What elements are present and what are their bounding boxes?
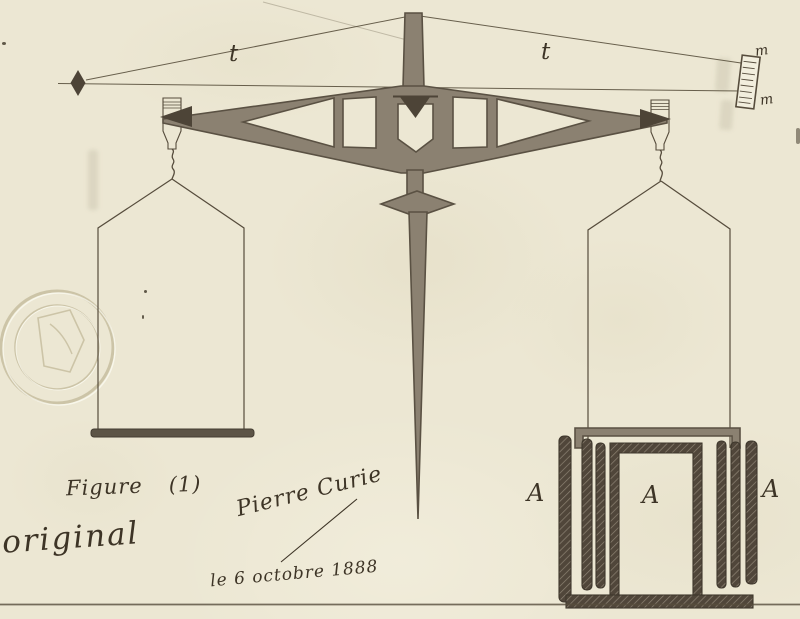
outer-wall-right	[746, 441, 757, 584]
bleedthrough-smudge	[715, 58, 731, 93]
left-hook-icon	[172, 149, 174, 179]
left-hanging-vessel	[91, 179, 254, 437]
inner-wall-right-b	[731, 442, 740, 587]
pointer-needle	[409, 212, 427, 519]
right-hook-icon	[660, 150, 662, 181]
central-post	[403, 13, 424, 87]
drawing-canvas: t t m m A A A Figure(1) original Pierre …	[0, 0, 800, 619]
bleedthrough-smudge	[88, 150, 98, 210]
ink-speck	[144, 290, 147, 293]
bleedthrough-smudge	[719, 100, 734, 131]
figure-caption: Figure(1)	[66, 472, 202, 501]
central-chamber-frame	[610, 443, 702, 597]
figure-number: (1)	[168, 472, 202, 497]
right-hanging-vessel	[588, 181, 730, 448]
label-scale-bottom: m	[759, 91, 774, 109]
ink-speck	[142, 315, 144, 319]
scan-edge-mark	[796, 128, 800, 144]
thread-right-upper	[420, 16, 741, 63]
thread-left-upper	[86, 16, 410, 80]
scanned-drawing-page: { "labels": { "thread_left": "t", "threa…	[0, 0, 800, 619]
enclosure-base	[566, 595, 753, 608]
inner-wall-right-a	[717, 441, 726, 588]
left-suspension-cup	[163, 98, 181, 179]
ink-speck	[2, 42, 6, 45]
right-suspension-cup	[651, 100, 669, 181]
figure-word: Figure	[66, 474, 144, 501]
inner-wall-left-b	[596, 443, 605, 588]
label-A-left: A	[527, 479, 544, 507]
counterweight-lens	[71, 70, 86, 96]
label-thread-right: t	[541, 39, 550, 65]
label-scale-top: m	[754, 42, 769, 60]
label-A-center: A	[642, 481, 659, 509]
inner-wall-left-a	[582, 439, 592, 590]
double-wall-enclosure	[559, 428, 757, 608]
label-thread-left: t	[229, 41, 238, 67]
knife-edge-pointer	[400, 97, 430, 118]
label-A-right: A	[762, 475, 779, 503]
outer-wall-left	[559, 436, 571, 602]
